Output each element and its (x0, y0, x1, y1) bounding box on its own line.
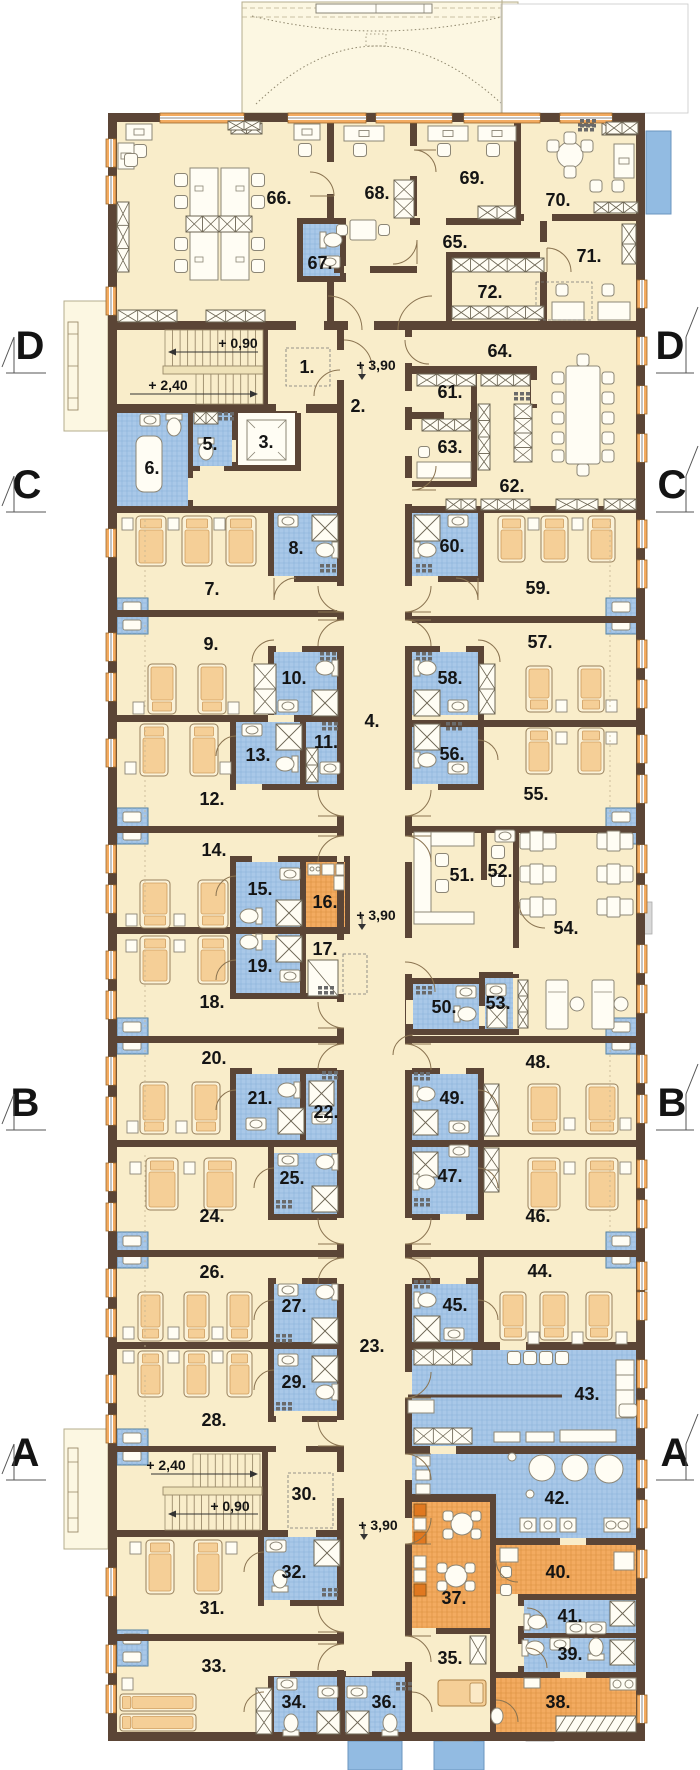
svg-text:19.: 19. (247, 956, 272, 976)
svg-text:33.: 33. (201, 1656, 226, 1676)
svg-text:59.: 59. (525, 578, 550, 598)
svg-text:53.: 53. (485, 993, 510, 1013)
svg-text:18.: 18. (199, 992, 224, 1012)
svg-text:C: C (658, 463, 687, 507)
svg-text:25.: 25. (279, 1168, 304, 1188)
svg-text:57.: 57. (527, 632, 552, 652)
svg-text:A: A (661, 1431, 690, 1475)
svg-text:7.: 7. (204, 579, 219, 599)
svg-text:71.: 71. (576, 246, 601, 266)
svg-text:41.: 41. (557, 1606, 582, 1626)
svg-text:68.: 68. (364, 183, 389, 203)
svg-text:B: B (658, 1081, 687, 1125)
svg-text:44.: 44. (527, 1261, 552, 1281)
svg-text:13.: 13. (245, 745, 270, 765)
svg-text:58.: 58. (437, 668, 462, 688)
svg-text:49.: 49. (439, 1088, 464, 1108)
svg-text:+ 2,40: + 2,40 (148, 377, 188, 393)
svg-text:21.: 21. (247, 1088, 272, 1108)
svg-text:8.: 8. (288, 538, 303, 558)
svg-text:23.: 23. (359, 1336, 384, 1356)
svg-text:3.: 3. (258, 432, 273, 452)
svg-text:69.: 69. (459, 168, 484, 188)
svg-text:70.: 70. (545, 190, 570, 210)
svg-text:55.: 55. (523, 784, 548, 804)
svg-text:50.: 50. (431, 997, 456, 1017)
svg-text:28.: 28. (201, 1410, 226, 1430)
svg-text:9.: 9. (203, 634, 218, 654)
svg-text:+ 0,90: + 0,90 (210, 1498, 250, 1514)
svg-text:2.: 2. (350, 396, 365, 416)
svg-text:14.: 14. (201, 840, 226, 860)
svg-text:5.: 5. (202, 434, 217, 454)
svg-text:10.: 10. (281, 668, 306, 688)
svg-text:11.: 11. (314, 732, 338, 752)
svg-text:6.: 6. (144, 458, 159, 478)
svg-text:+ 0,90: + 0,90 (218, 335, 258, 351)
svg-text:26.: 26. (199, 1262, 224, 1282)
svg-text:35.: 35. (437, 1648, 462, 1668)
svg-text:62.: 62. (499, 476, 524, 496)
svg-text:60.: 60. (439, 536, 464, 556)
svg-text:63.: 63. (437, 437, 462, 457)
svg-text:29.: 29. (281, 1372, 306, 1392)
svg-text:46.: 46. (525, 1206, 550, 1226)
svg-text:C: C (13, 463, 42, 507)
svg-text:27.: 27. (281, 1296, 306, 1316)
svg-text:43.: 43. (574, 1384, 599, 1404)
svg-text:22.: 22. (313, 1102, 338, 1122)
svg-text:61.: 61. (437, 382, 462, 402)
svg-text:D: D (656, 324, 685, 368)
svg-text:34.: 34. (281, 1692, 306, 1712)
svg-text:38.: 38. (545, 1692, 570, 1712)
svg-text:36.: 36. (371, 1692, 396, 1712)
svg-text:52.: 52. (487, 861, 512, 881)
svg-text:65.: 65. (442, 232, 467, 252)
svg-text:40.: 40. (545, 1562, 570, 1582)
svg-text:4.: 4. (364, 711, 379, 731)
svg-text:51.: 51. (449, 865, 474, 885)
svg-text:15.: 15. (247, 879, 272, 899)
svg-text:37.: 37. (441, 1588, 466, 1608)
svg-text:24.: 24. (199, 1206, 224, 1226)
svg-text:64.: 64. (487, 341, 512, 361)
svg-text:+ 2,40: + 2,40 (146, 1457, 186, 1473)
svg-text:12.: 12. (199, 789, 224, 809)
svg-text:56.: 56. (439, 744, 464, 764)
svg-text:30.: 30. (291, 1484, 316, 1504)
svg-text:42.: 42. (544, 1488, 569, 1508)
svg-text:1.: 1. (299, 357, 314, 377)
svg-text:48.: 48. (525, 1052, 550, 1072)
svg-text:A: A (11, 1431, 40, 1475)
svg-text:67.: 67. (307, 253, 332, 273)
svg-text:47.: 47. (437, 1166, 462, 1186)
svg-text:32.: 32. (281, 1562, 306, 1582)
svg-text:72.: 72. (477, 282, 502, 302)
svg-text:16.: 16. (312, 892, 337, 912)
svg-text:66.: 66. (266, 188, 291, 208)
svg-text:17.: 17. (312, 939, 337, 959)
svg-text:D: D (16, 324, 45, 368)
svg-text:20.: 20. (201, 1048, 226, 1068)
svg-text:31.: 31. (199, 1598, 224, 1618)
svg-text:54.: 54. (553, 918, 578, 938)
svg-text:39.: 39. (557, 1644, 582, 1664)
svg-text:45.: 45. (442, 1295, 467, 1315)
svg-text:B: B (11, 1081, 40, 1125)
